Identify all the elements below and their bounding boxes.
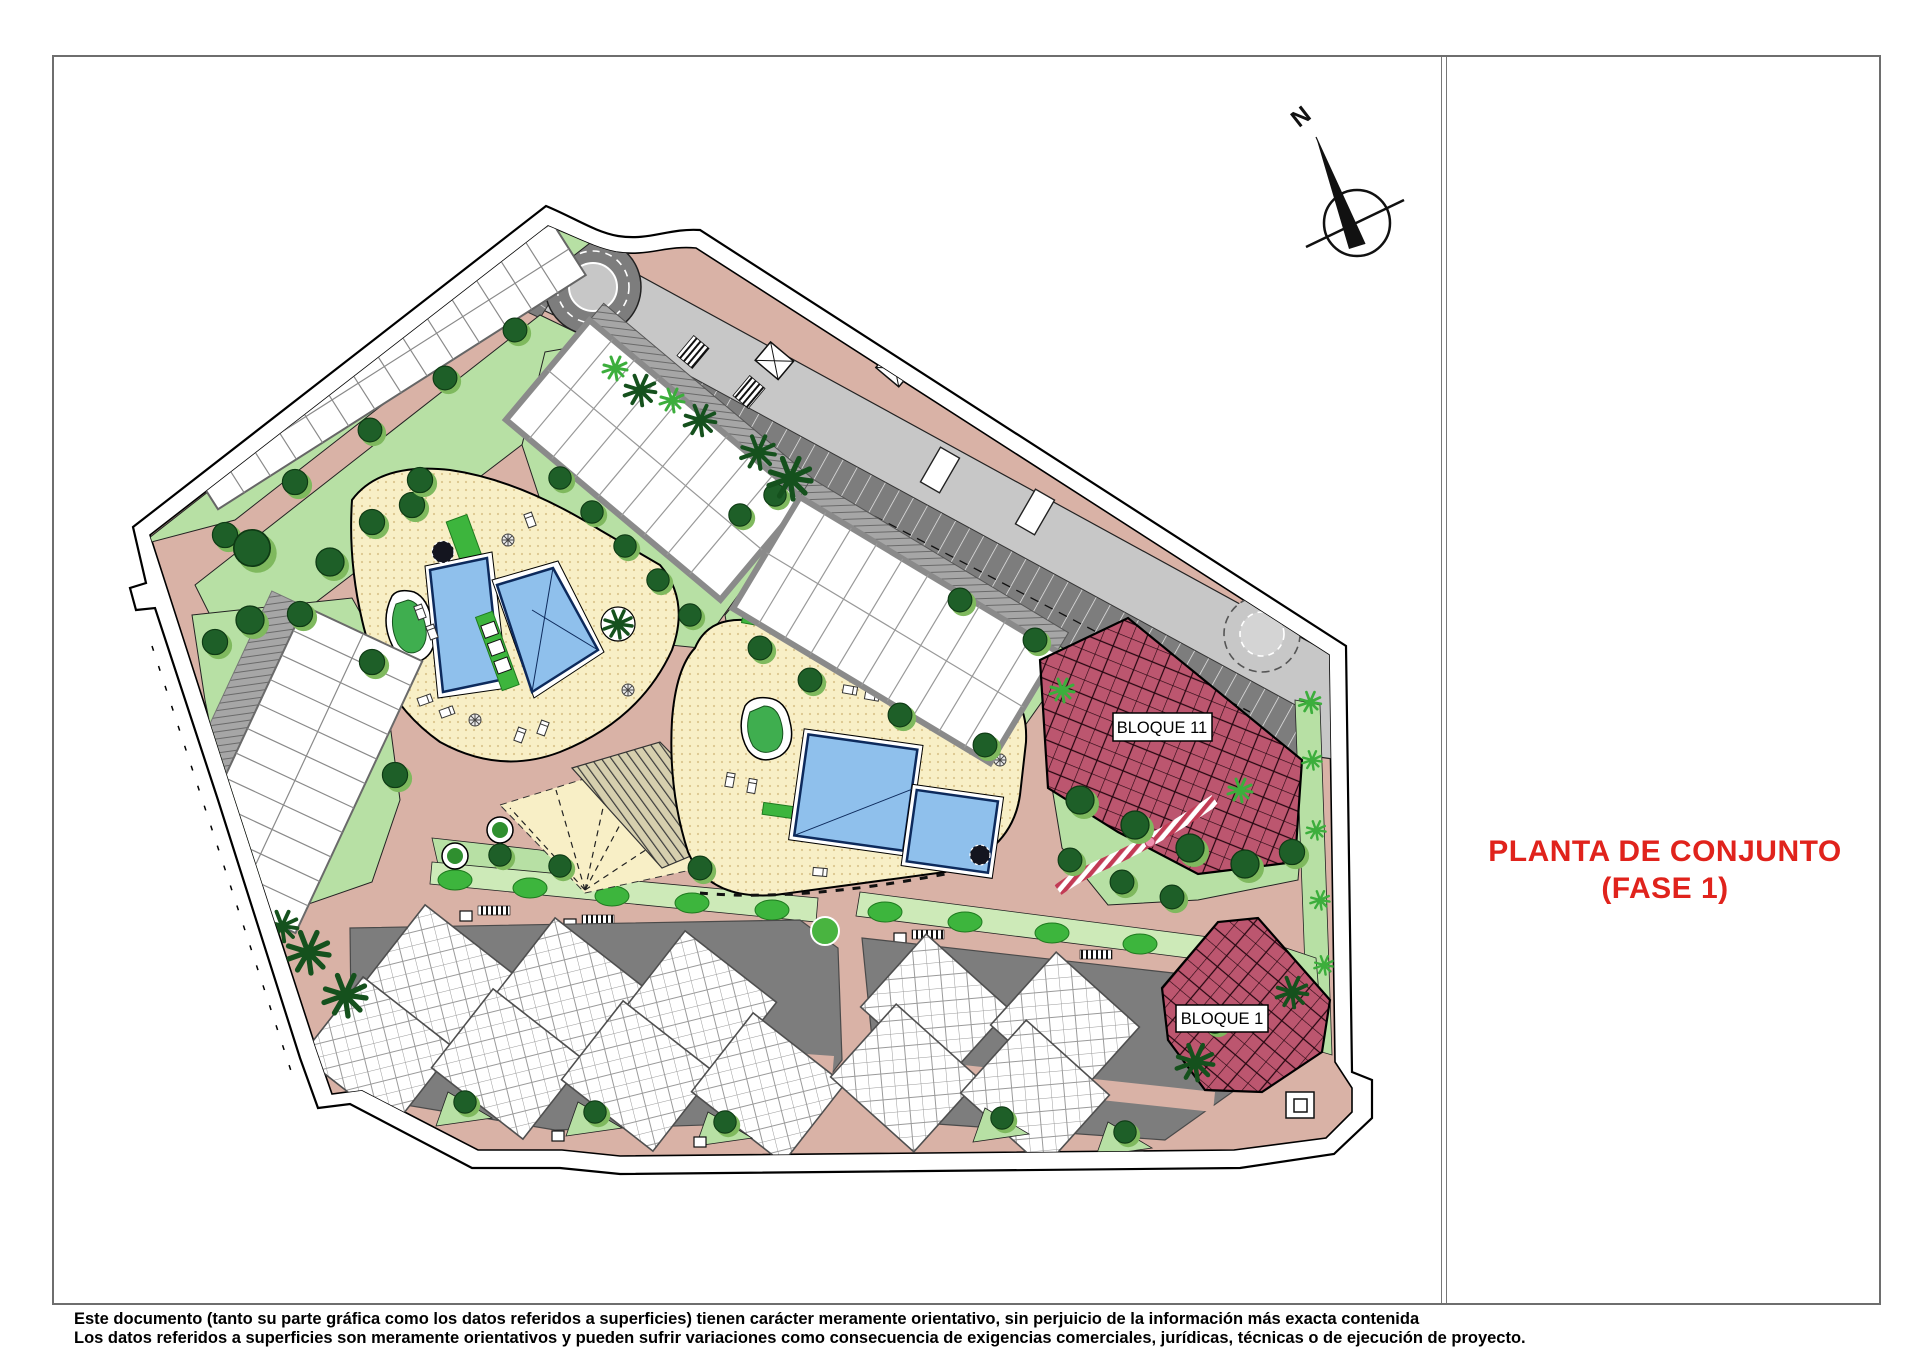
bloque-1-label: BLOQUE 1 — [1176, 1005, 1268, 1032]
compass-rose: N — [1286, 101, 1404, 256]
bloque-1-label-text: BLOQUE 1 — [1181, 1010, 1264, 1028]
sun-lounger-icon — [813, 867, 828, 876]
residential-cluster-left — [302, 905, 845, 1163]
gate-post — [460, 911, 472, 921]
gate-post — [552, 1131, 564, 1141]
spa-pool — [432, 541, 454, 563]
parasol-icon — [502, 534, 514, 546]
parasol-icon — [469, 714, 481, 726]
parasol-icon — [622, 684, 634, 696]
gate-post — [694, 1137, 706, 1147]
spa-pool — [970, 845, 990, 865]
site-plan-svg: N BLOQUE 11 BLOQUE 1 — [0, 0, 1920, 1357]
sun-lounger-icon — [842, 685, 857, 695]
sun-lounger-icon — [725, 772, 735, 787]
pond-island — [748, 706, 783, 752]
sun-lounger-icon — [747, 778, 757, 793]
planter — [811, 917, 839, 945]
compass-north-label: N — [1286, 101, 1316, 133]
bloque-11-label-text: BLOQUE 11 — [1117, 719, 1207, 737]
bloque-11-label: BLOQUE 11 — [1113, 713, 1212, 741]
service-structure — [1286, 1092, 1314, 1118]
swimming-pool-2a — [794, 734, 917, 850]
